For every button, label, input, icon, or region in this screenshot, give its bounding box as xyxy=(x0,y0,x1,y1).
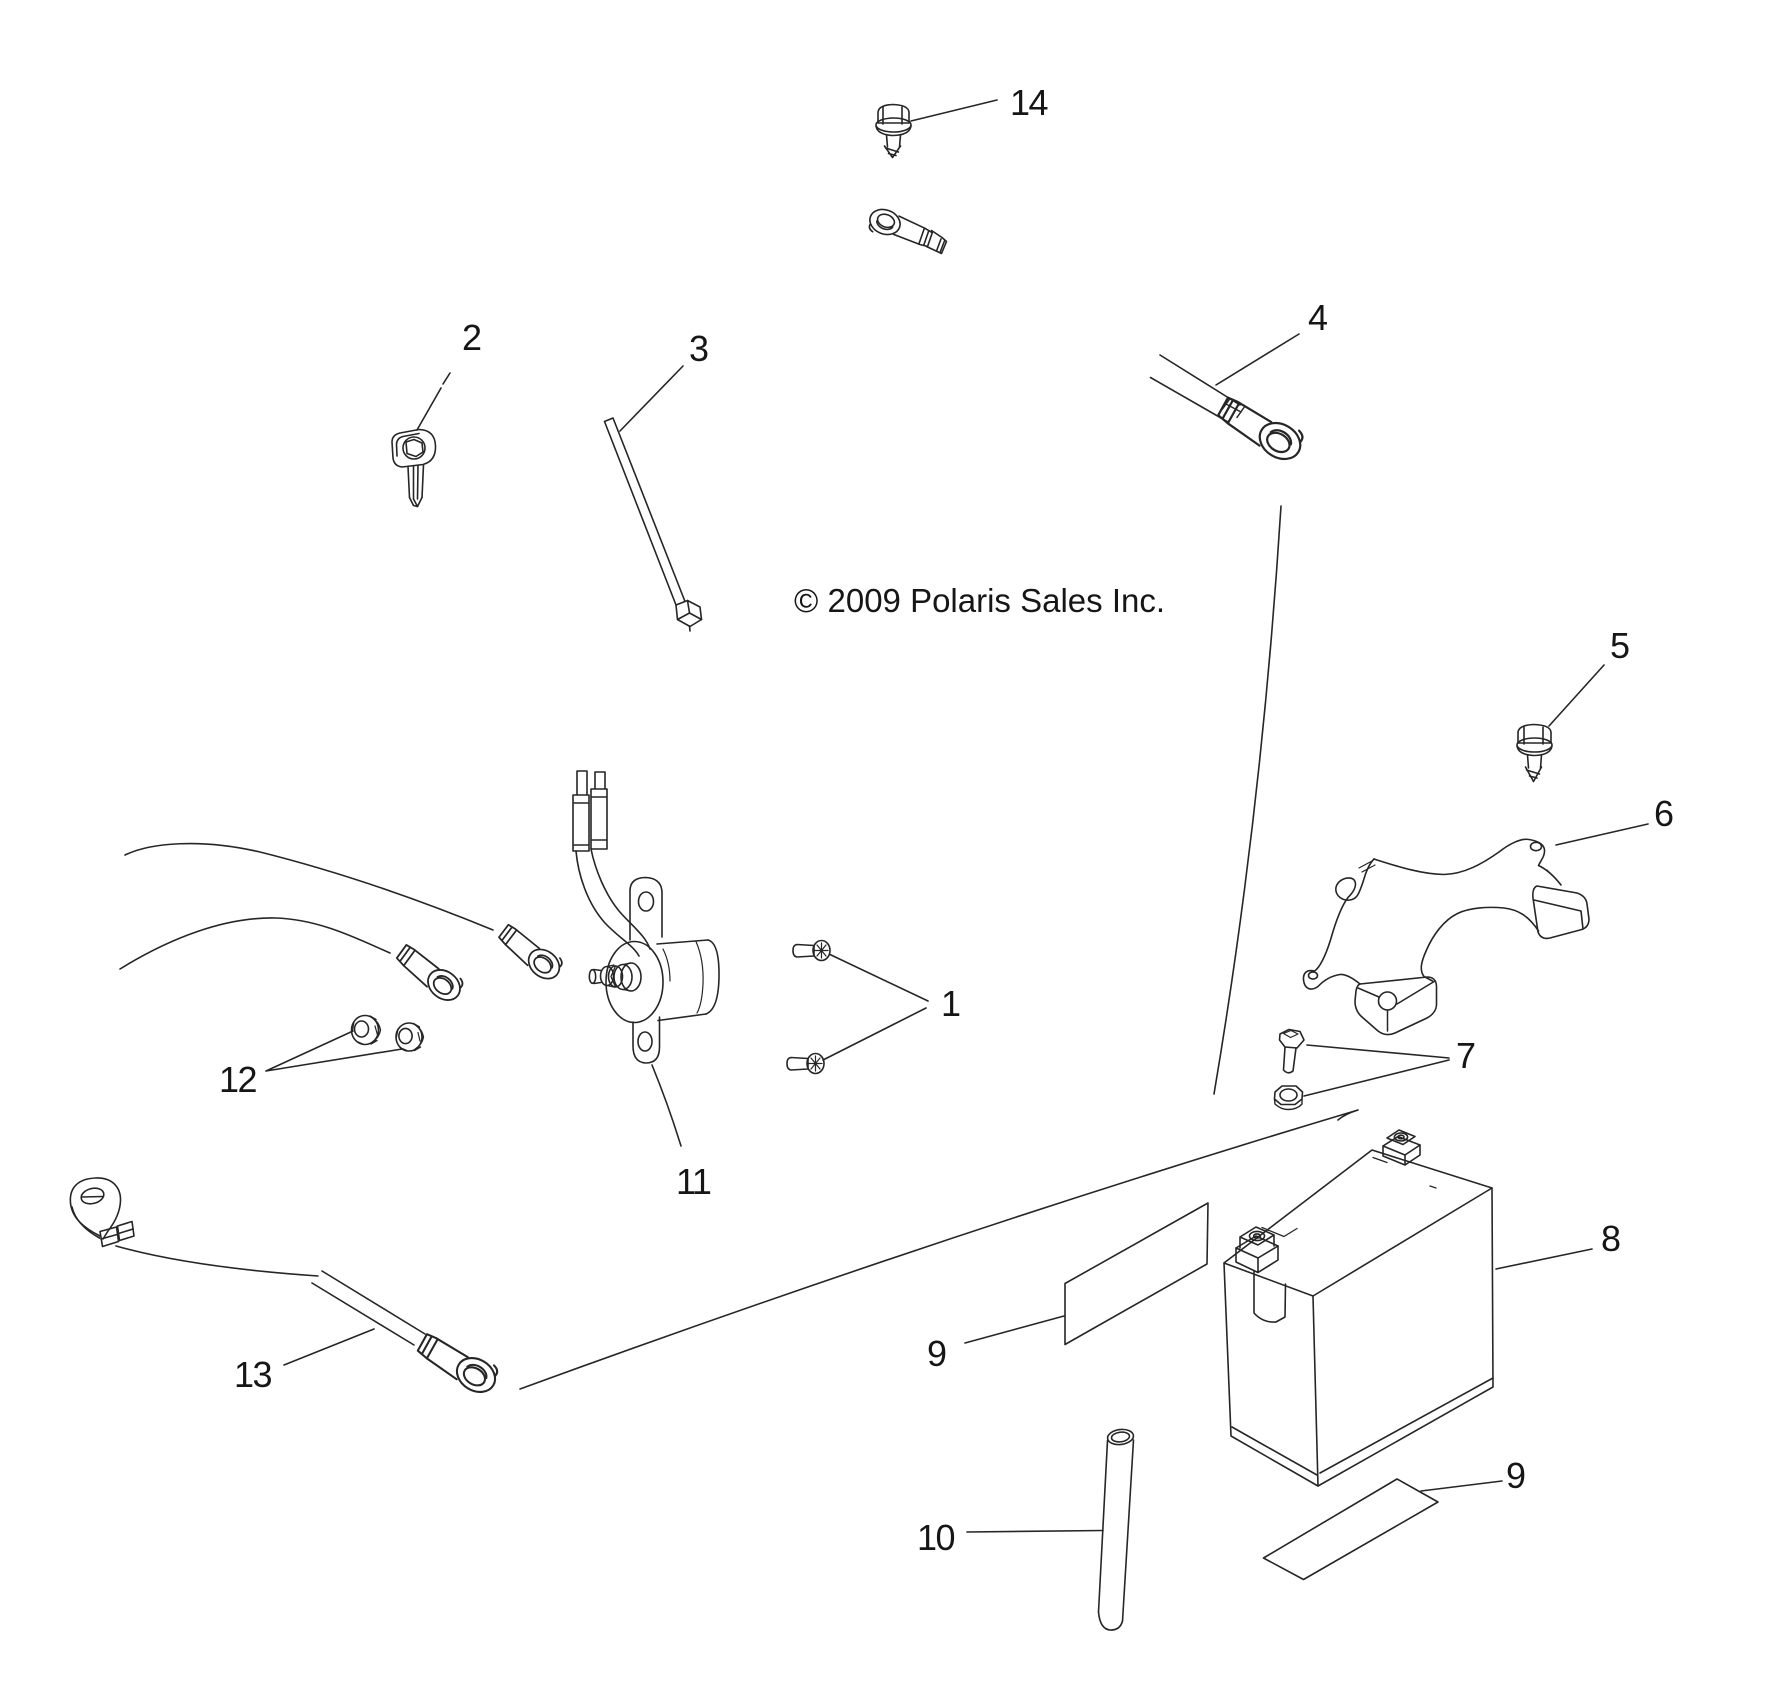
svg-text:9: 9 xyxy=(927,1333,946,1374)
svg-text:7: 7 xyxy=(1456,1035,1475,1076)
svg-text:3: 3 xyxy=(689,328,708,369)
svg-text:8: 8 xyxy=(1601,1218,1620,1259)
svg-text:5: 5 xyxy=(1610,625,1629,666)
svg-text:14: 14 xyxy=(1010,82,1048,123)
svg-text:1: 1 xyxy=(941,983,960,1024)
svg-text:6: 6 xyxy=(1654,793,1673,834)
svg-text:12: 12 xyxy=(219,1059,257,1100)
svg-text:13: 13 xyxy=(234,1354,272,1395)
svg-text:© 2009 Polaris Sales Inc.: © 2009 Polaris Sales Inc. xyxy=(794,582,1165,619)
svg-text:2: 2 xyxy=(462,317,481,358)
svg-text:11: 11 xyxy=(676,1161,711,1202)
svg-text:4: 4 xyxy=(1308,297,1327,338)
svg-text:9: 9 xyxy=(1506,1455,1525,1496)
svg-text:10: 10 xyxy=(917,1517,955,1558)
